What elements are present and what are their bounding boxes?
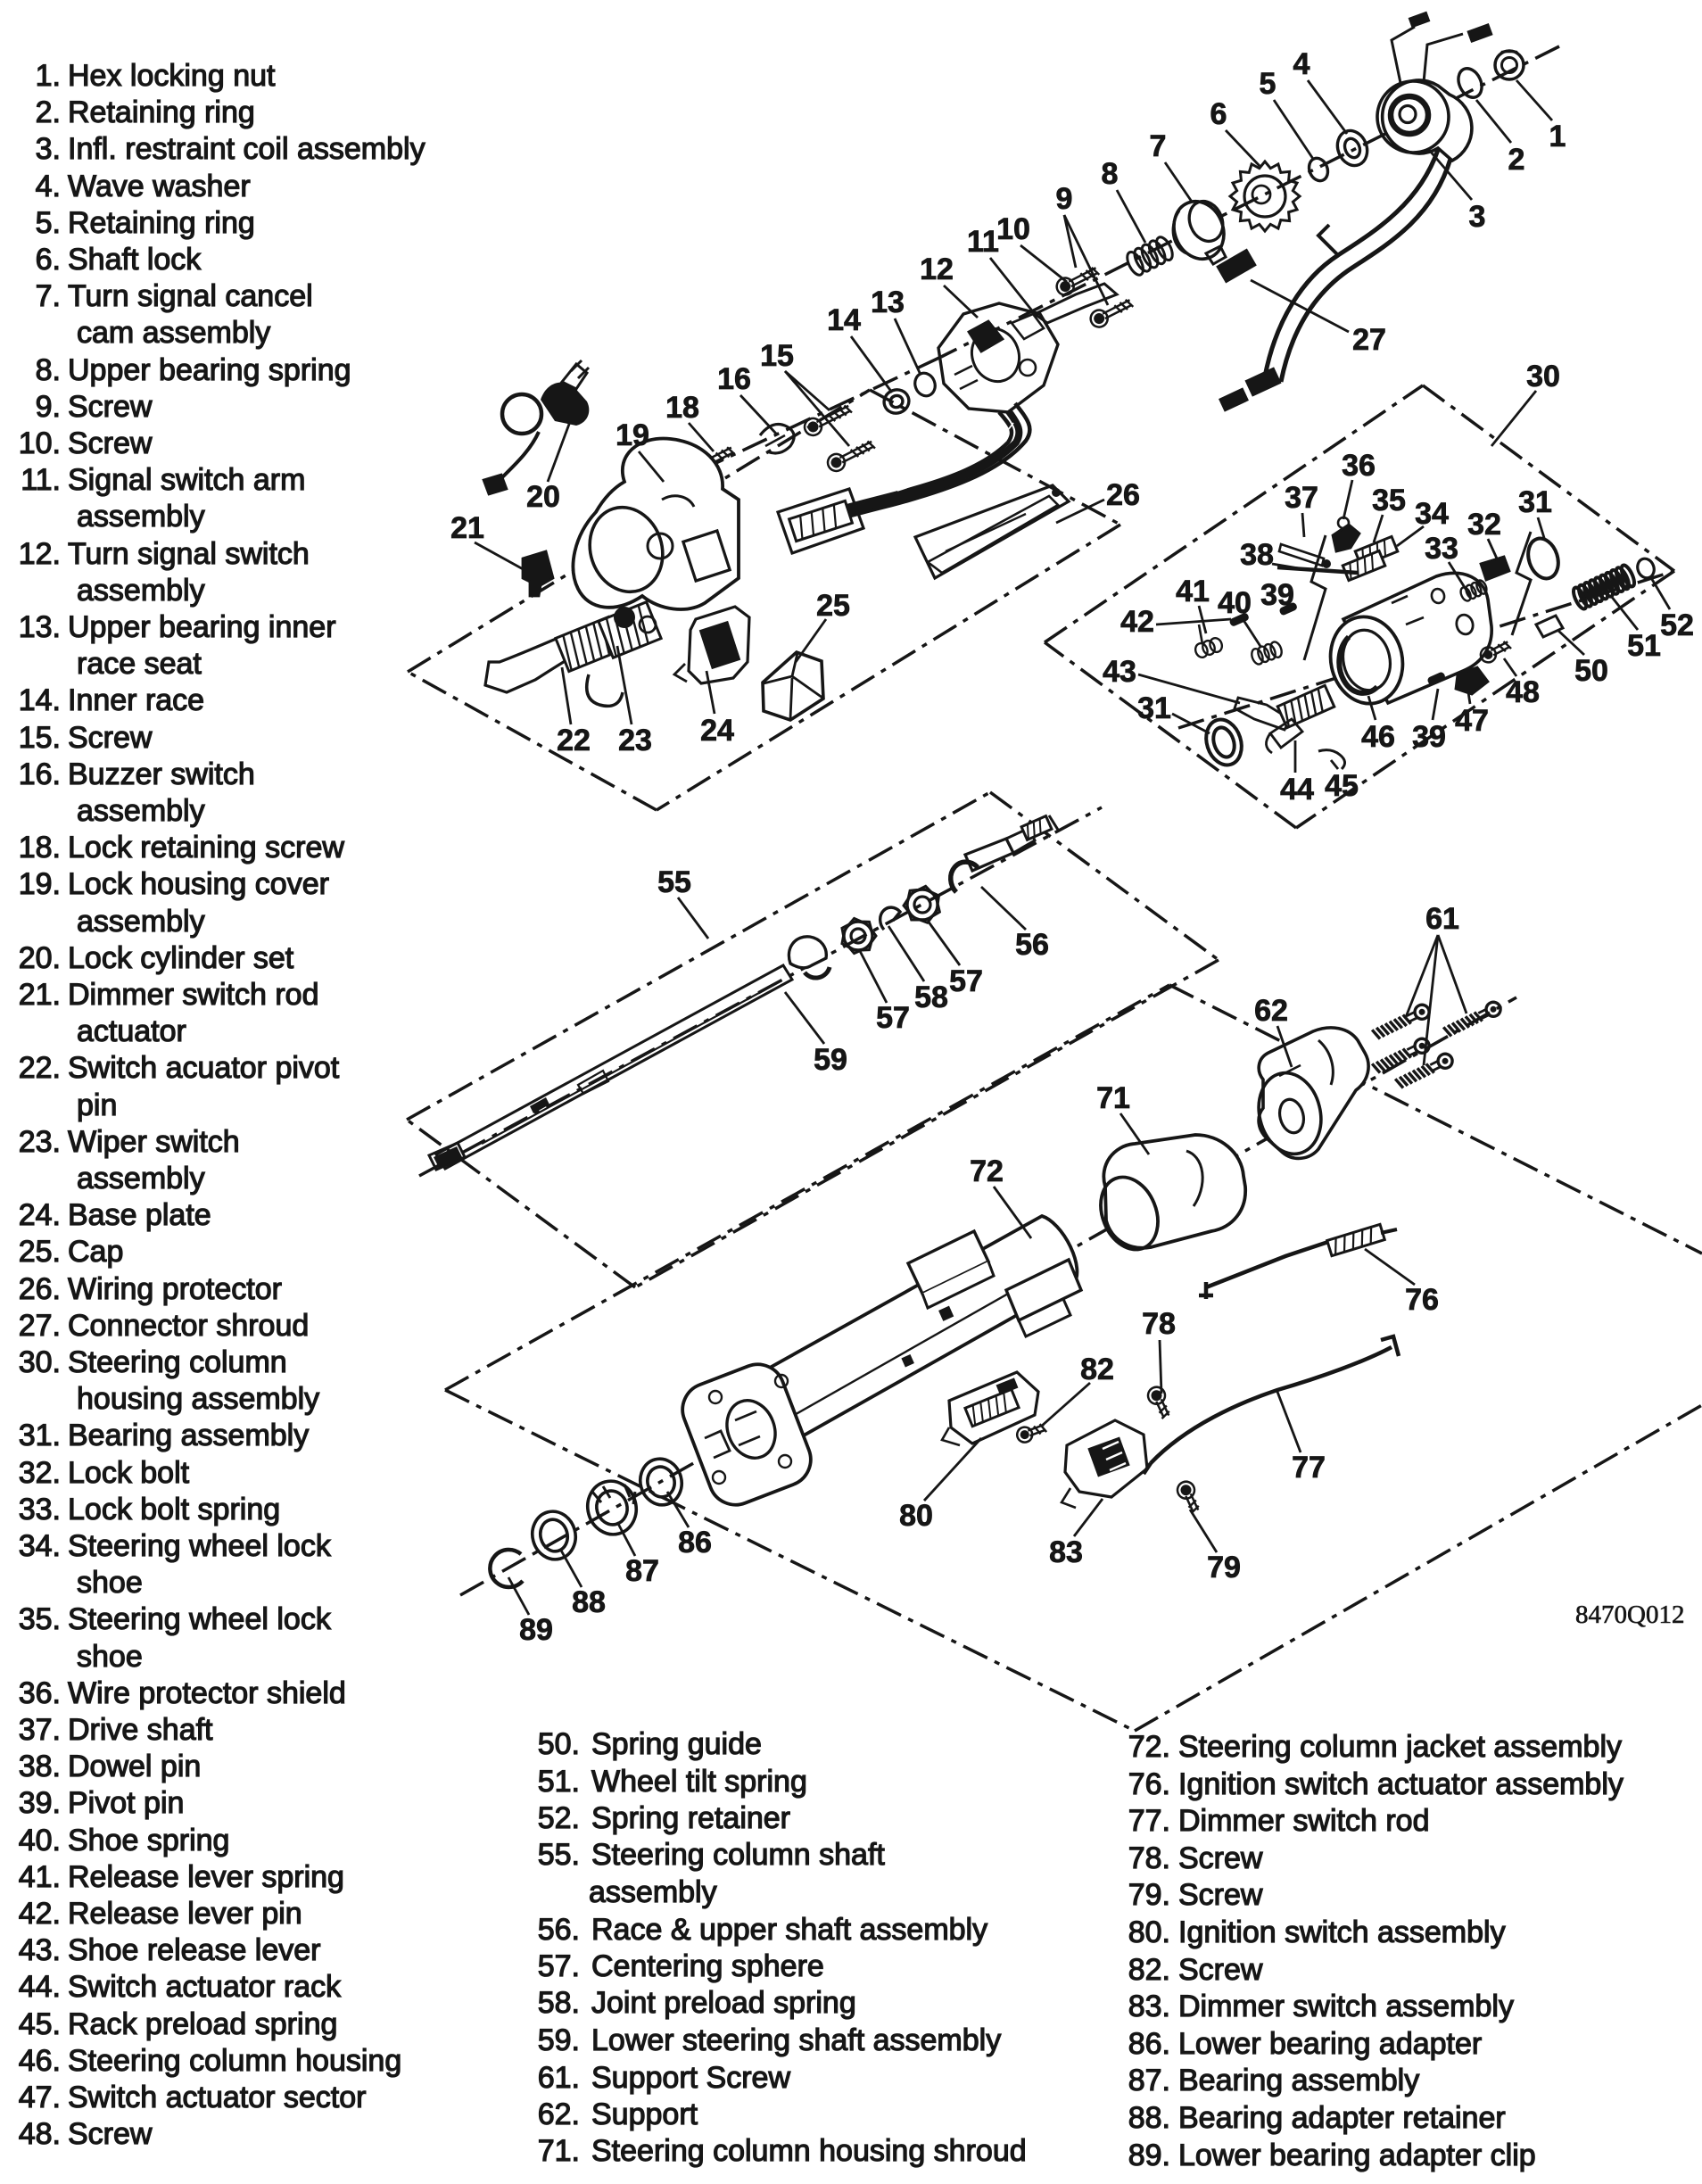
- svg-text:44: 44: [1280, 773, 1314, 807]
- svg-text:32.: 32.: [19, 1456, 61, 1490]
- svg-text:35: 35: [1372, 484, 1406, 517]
- svg-text:15.: 15.: [19, 721, 61, 755]
- svg-text:82.: 82.: [1128, 1953, 1170, 1987]
- svg-text:30: 30: [1526, 360, 1560, 393]
- svg-text:Spring retainer: Spring retainer: [591, 1801, 790, 1835]
- svg-text:72.: 72.: [1128, 1730, 1170, 1764]
- svg-text:51.: 51.: [538, 1765, 580, 1799]
- svg-text:Bearing adapter retainer: Bearing adapter retainer: [1178, 2101, 1506, 2135]
- svg-text:21: 21: [450, 511, 484, 545]
- svg-text:27: 27: [1352, 323, 1386, 357]
- svg-text:10.: 10.: [19, 426, 61, 460]
- svg-text:23.: 23.: [19, 1125, 61, 1159]
- svg-text:Screw: Screw: [1178, 1878, 1263, 1912]
- svg-text:11.: 11.: [21, 463, 61, 497]
- svg-text:61: 61: [1425, 902, 1459, 936]
- svg-text:21.: 21.: [19, 978, 61, 1012]
- svg-text:2.: 2.: [36, 95, 61, 129]
- svg-text:32: 32: [1467, 508, 1501, 542]
- svg-text:7.: 7.: [36, 279, 61, 313]
- svg-text:10: 10: [996, 212, 1030, 246]
- svg-text:56: 56: [1015, 928, 1049, 962]
- svg-text:5.: 5.: [36, 206, 61, 240]
- svg-text:88: 88: [572, 1585, 606, 1619]
- svg-text:assembly: assembly: [77, 905, 205, 939]
- svg-text:assembly: assembly: [589, 1875, 717, 1909]
- svg-text:Rack preload spring: Rack preload spring: [68, 2007, 337, 2041]
- svg-text:14.: 14.: [19, 683, 61, 717]
- svg-text:Screw: Screw: [1178, 1841, 1263, 1875]
- svg-text:44.: 44.: [19, 1970, 61, 2004]
- svg-text:59: 59: [814, 1043, 847, 1077]
- svg-text:57: 57: [876, 1001, 910, 1035]
- svg-text:Connector shroud: Connector shroud: [68, 1309, 309, 1343]
- svg-text:43.: 43.: [19, 1933, 61, 1967]
- svg-text:1.: 1.: [36, 59, 61, 93]
- svg-text:Steering column jacket assembl: Steering column jacket assembly: [1178, 1730, 1622, 1764]
- svg-text:19.: 19.: [19, 867, 61, 901]
- svg-text:37: 37: [1285, 481, 1318, 515]
- svg-text:56.: 56.: [538, 1913, 580, 1947]
- svg-text:45: 45: [1325, 769, 1359, 803]
- svg-text:Spring guide: Spring guide: [591, 1727, 762, 1761]
- svg-text:6: 6: [1210, 97, 1227, 131]
- svg-text:Wiper switch: Wiper switch: [68, 1125, 240, 1159]
- svg-text:8.: 8.: [36, 353, 61, 387]
- svg-text:Steering wheel lock: Steering wheel lock: [68, 1602, 332, 1636]
- svg-text:Screw: Screw: [68, 721, 153, 755]
- svg-text:40: 40: [1218, 586, 1252, 620]
- svg-text:Steering wheel lock: Steering wheel lock: [68, 1529, 332, 1563]
- svg-text:48.: 48.: [19, 2117, 61, 2151]
- svg-text:79: 79: [1207, 1551, 1241, 1584]
- svg-text:Cap: Cap: [68, 1235, 123, 1269]
- svg-text:33: 33: [1425, 532, 1458, 566]
- svg-text:30.: 30.: [19, 1345, 61, 1379]
- svg-text:9: 9: [1056, 182, 1073, 216]
- svg-text:39.: 39.: [19, 1786, 61, 1820]
- svg-text:19: 19: [616, 418, 649, 452]
- svg-text:52.: 52.: [538, 1801, 580, 1835]
- svg-text:Turn signal switch: Turn signal switch: [68, 537, 310, 571]
- svg-text:race seat: race seat: [77, 647, 202, 681]
- svg-text:Screw: Screw: [68, 426, 153, 460]
- svg-text:47: 47: [1455, 704, 1489, 738]
- svg-text:38: 38: [1240, 538, 1274, 572]
- svg-text:23: 23: [618, 724, 652, 757]
- svg-text:shoe: shoe: [77, 1566, 143, 1600]
- svg-text:5: 5: [1260, 67, 1276, 101]
- svg-text:Screw: Screw: [1178, 1953, 1263, 1987]
- svg-text:35.: 35.: [19, 1602, 61, 1636]
- svg-text:86: 86: [678, 1526, 712, 1559]
- svg-text:62: 62: [1254, 994, 1288, 1028]
- svg-text:4: 4: [1293, 47, 1310, 81]
- svg-text:assembly: assembly: [77, 500, 205, 534]
- svg-text:18.: 18.: [19, 831, 61, 864]
- svg-text:51: 51: [1627, 629, 1661, 663]
- svg-text:46: 46: [1361, 720, 1395, 754]
- svg-text:82: 82: [1080, 1353, 1114, 1386]
- svg-text:Lock bolt spring: Lock bolt spring: [68, 1493, 280, 1526]
- svg-text:Shoe release lever: Shoe release lever: [68, 1933, 321, 1967]
- svg-text:Release lever pin: Release lever pin: [68, 1897, 302, 1931]
- svg-text:36: 36: [1342, 449, 1376, 483]
- svg-text:88.: 88.: [1128, 2101, 1170, 2135]
- svg-text:57: 57: [949, 964, 983, 998]
- svg-text:Retaining ring: Retaining ring: [68, 206, 255, 240]
- svg-text:Support: Support: [591, 2097, 698, 2131]
- svg-text:14: 14: [827, 303, 861, 337]
- svg-text:77: 77: [1292, 1451, 1326, 1485]
- svg-text:Upper bearing spring: Upper bearing spring: [68, 353, 351, 387]
- svg-text:34.: 34.: [19, 1529, 61, 1563]
- svg-text:8470Q012: 8470Q012: [1575, 1601, 1684, 1629]
- svg-text:42.: 42.: [19, 1897, 61, 1931]
- svg-text:Ignition switch actuator assem: Ignition switch actuator assembly: [1178, 1767, 1624, 1801]
- svg-text:47.: 47.: [19, 2081, 61, 2114]
- svg-text:18: 18: [665, 391, 699, 425]
- svg-text:Dimmer switch assembly: Dimmer switch assembly: [1178, 1990, 1514, 2023]
- svg-text:13.: 13.: [19, 610, 61, 644]
- svg-text:13: 13: [871, 285, 905, 319]
- svg-text:Ignition switch assembly: Ignition switch assembly: [1178, 1915, 1506, 1949]
- svg-text:26: 26: [1106, 478, 1140, 512]
- svg-text:Hex locking nut: Hex locking nut: [68, 59, 276, 93]
- svg-text:83.: 83.: [1128, 1990, 1170, 2023]
- svg-text:50.: 50.: [538, 1727, 580, 1761]
- svg-text:80.: 80.: [1128, 1915, 1170, 1949]
- svg-text:34: 34: [1415, 497, 1449, 531]
- svg-text:Screw: Screw: [68, 2117, 153, 2151]
- svg-text:76: 76: [1405, 1283, 1439, 1317]
- svg-text:Lower bearing adapter clip: Lower bearing adapter clip: [1178, 2138, 1536, 2172]
- svg-text:58.: 58.: [538, 1986, 580, 2020]
- svg-text:46.: 46.: [19, 2044, 61, 2078]
- svg-text:78.: 78.: [1128, 1841, 1170, 1875]
- svg-text:39: 39: [1260, 578, 1294, 612]
- svg-text:Switch actuator sector: Switch actuator sector: [68, 2081, 366, 2114]
- svg-text:Infl. restraint coil assembly: Infl. restraint coil assembly: [68, 132, 425, 166]
- svg-text:58: 58: [914, 980, 948, 1014]
- svg-text:Release lever spring: Release lever spring: [68, 1860, 344, 1894]
- svg-text:42: 42: [1120, 605, 1154, 639]
- svg-text:31.: 31.: [19, 1419, 61, 1452]
- svg-text:16.: 16.: [19, 757, 61, 791]
- svg-text:76.: 76.: [1128, 1767, 1170, 1801]
- svg-text:4.: 4.: [36, 170, 61, 203]
- svg-text:87.: 87.: [1128, 2064, 1170, 2097]
- svg-text:shoe: shoe: [77, 1640, 143, 1674]
- svg-text:12: 12: [920, 252, 954, 286]
- svg-text:89.: 89.: [1128, 2138, 1170, 2172]
- svg-text:83: 83: [1049, 1535, 1083, 1569]
- svg-text:50: 50: [1574, 654, 1608, 688]
- svg-text:Inner race: Inner race: [68, 683, 204, 717]
- svg-text:Joint preload spring: Joint preload spring: [591, 1986, 856, 2020]
- svg-text:40.: 40.: [19, 1824, 61, 1857]
- svg-text:Pivot pin: Pivot pin: [68, 1786, 184, 1820]
- svg-text:79.: 79.: [1128, 1878, 1170, 1912]
- svg-text:Shoe spring: Shoe spring: [68, 1824, 229, 1857]
- svg-text:20: 20: [526, 480, 560, 514]
- svg-text:62.: 62.: [538, 2097, 580, 2131]
- svg-text:Steering column housing shroud: Steering column housing shroud: [591, 2134, 1027, 2168]
- svg-text:Retaining ring: Retaining ring: [68, 95, 255, 129]
- svg-text:Drive shaft: Drive shaft: [68, 1713, 213, 1747]
- svg-text:Signal switch arm: Signal switch arm: [68, 463, 305, 497]
- svg-text:25: 25: [816, 589, 850, 623]
- svg-text:7: 7: [1150, 129, 1167, 163]
- svg-text:Shaft lock: Shaft lock: [68, 243, 202, 277]
- svg-text:57.: 57.: [538, 1949, 580, 1983]
- svg-text:Switch acuator pivot: Switch acuator pivot: [68, 1051, 340, 1085]
- svg-text:86.: 86.: [1128, 2027, 1170, 2061]
- svg-text:3.: 3.: [36, 132, 61, 166]
- svg-text:Turn signal cancel: Turn signal cancel: [68, 279, 313, 313]
- svg-text:Wave washer: Wave washer: [68, 170, 251, 203]
- svg-text:55: 55: [657, 865, 691, 899]
- svg-text:37.: 37.: [19, 1713, 61, 1747]
- svg-text:71.: 71.: [538, 2134, 580, 2168]
- svg-text:cam assembly: cam assembly: [77, 316, 270, 350]
- svg-text:Steering column housing: Steering column housing: [68, 2044, 401, 2078]
- svg-text:24.: 24.: [19, 1198, 61, 1232]
- svg-text:27.: 27.: [19, 1309, 61, 1343]
- svg-text:20.: 20.: [19, 941, 61, 975]
- svg-text:87: 87: [625, 1554, 659, 1588]
- svg-text:61.: 61.: [538, 2061, 580, 2095]
- svg-text:26.: 26.: [19, 1272, 61, 1306]
- svg-text:31: 31: [1137, 691, 1171, 725]
- svg-text:Buzzer switch: Buzzer switch: [68, 757, 255, 791]
- svg-text:52: 52: [1660, 608, 1694, 642]
- svg-text:Base plate: Base plate: [68, 1198, 211, 1232]
- svg-text:Bearing assembly: Bearing assembly: [68, 1419, 309, 1452]
- svg-text:Wire protector shield: Wire protector shield: [68, 1676, 346, 1710]
- svg-text:31: 31: [1518, 485, 1552, 519]
- svg-text:Dimmer switch rod: Dimmer switch rod: [1178, 1804, 1429, 1838]
- svg-text:48: 48: [1506, 675, 1540, 709]
- svg-text:1: 1: [1549, 120, 1566, 153]
- svg-text:Support Screw: Support Screw: [591, 2061, 790, 2095]
- svg-text:24: 24: [700, 714, 734, 748]
- svg-text:9.: 9.: [36, 390, 61, 424]
- svg-text:Lower steering shaft assembly: Lower steering shaft assembly: [591, 2023, 1001, 2057]
- svg-text:43: 43: [1103, 655, 1136, 689]
- svg-text:22.: 22.: [19, 1051, 61, 1085]
- svg-text:actuator: actuator: [77, 1014, 186, 1048]
- svg-text:8: 8: [1102, 157, 1119, 191]
- svg-text:Centering sphere: Centering sphere: [591, 1949, 824, 1983]
- svg-text:71: 71: [1096, 1081, 1130, 1115]
- svg-text:11: 11: [967, 225, 999, 259]
- svg-text:22: 22: [557, 724, 591, 757]
- svg-text:Wheel tilt spring: Wheel tilt spring: [591, 1765, 807, 1799]
- svg-text:89: 89: [519, 1613, 553, 1647]
- svg-text:25.: 25.: [19, 1235, 61, 1269]
- svg-text:59.: 59.: [538, 2023, 580, 2057]
- svg-text:assembly: assembly: [77, 794, 205, 828]
- svg-text:12.: 12.: [19, 537, 61, 571]
- svg-text:55.: 55.: [538, 1838, 580, 1872]
- svg-text:Steering column shaft: Steering column shaft: [591, 1838, 885, 1872]
- svg-text:Bearing assembly: Bearing assembly: [1178, 2064, 1419, 2097]
- svg-text:38.: 38.: [19, 1750, 61, 1783]
- svg-text:41.: 41.: [19, 1860, 61, 1894]
- svg-text:16: 16: [717, 362, 751, 396]
- svg-text:Dowel pin: Dowel pin: [68, 1750, 201, 1783]
- svg-text:36.: 36.: [19, 1676, 61, 1710]
- svg-text:41: 41: [1176, 575, 1210, 608]
- svg-text:Lock cylinder set: Lock cylinder set: [68, 941, 294, 975]
- svg-text:Lower bearing adapter: Lower bearing adapter: [1178, 2027, 1482, 2061]
- svg-text:Dimmer switch rod: Dimmer switch rod: [68, 978, 318, 1012]
- svg-text:assembly: assembly: [77, 1162, 205, 1195]
- svg-text:Screw: Screw: [68, 390, 153, 424]
- svg-text:15: 15: [760, 339, 794, 373]
- svg-text:39: 39: [1412, 720, 1446, 754]
- svg-text:Wiring protector: Wiring protector: [68, 1272, 282, 1306]
- svg-text:Lock bolt: Lock bolt: [68, 1456, 190, 1490]
- svg-text:33.: 33.: [19, 1493, 61, 1526]
- svg-text:Lock housing cover: Lock housing cover: [68, 867, 329, 901]
- svg-text:2: 2: [1508, 143, 1525, 177]
- svg-text:3: 3: [1469, 200, 1486, 234]
- svg-text:Steering column: Steering column: [68, 1345, 287, 1379]
- svg-text:Upper bearing inner: Upper bearing inner: [68, 610, 336, 644]
- svg-text:72: 72: [970, 1154, 1004, 1188]
- svg-text:6.: 6.: [36, 243, 61, 277]
- svg-text:Lock retaining screw: Lock retaining screw: [68, 831, 344, 864]
- svg-text:80: 80: [899, 1499, 933, 1533]
- svg-text:77.: 77.: [1128, 1804, 1170, 1838]
- svg-text:Switch actuator rack: Switch actuator rack: [68, 1970, 342, 2004]
- svg-text:78: 78: [1142, 1307, 1176, 1341]
- svg-text:45.: 45.: [19, 2007, 61, 2041]
- svg-text:housing assembly: housing assembly: [77, 1382, 319, 1416]
- svg-text:pin: pin: [77, 1088, 117, 1122]
- svg-text:Race & upper shaft assembly: Race & upper shaft assembly: [591, 1913, 987, 1947]
- svg-text:assembly: assembly: [77, 574, 205, 608]
